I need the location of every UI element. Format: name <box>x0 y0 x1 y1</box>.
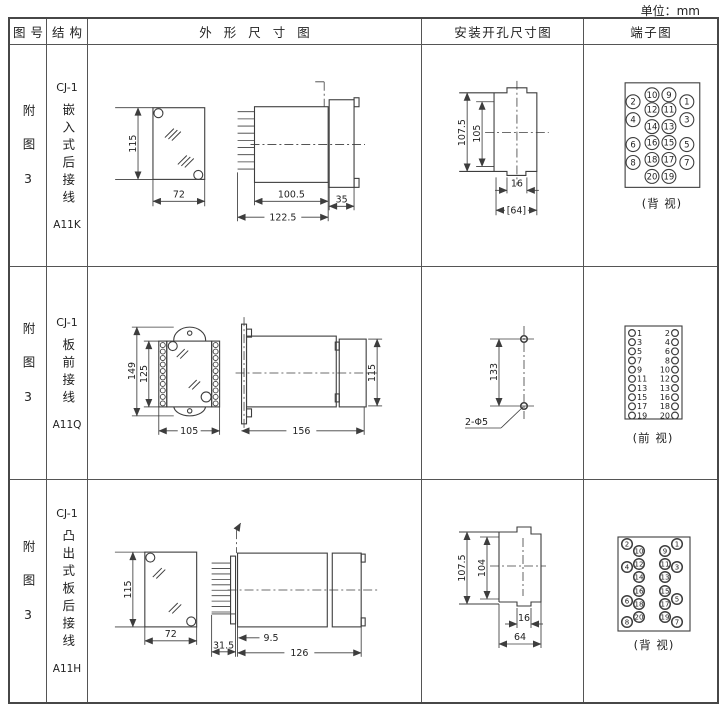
svg-text:4: 4 <box>630 115 635 125</box>
svg-text:16: 16 <box>660 393 670 402</box>
hole-note: 2-Φ5 <box>465 417 488 428</box>
svg-text:12: 12 <box>660 375 670 384</box>
svg-text:1: 1 <box>637 329 642 338</box>
svg-text:6: 6 <box>630 140 635 150</box>
svg-text:12: 12 <box>647 105 658 115</box>
structure-row2: CJ-1 板前接线 A11Q <box>47 267 88 480</box>
svg-text:11: 11 <box>661 561 670 569</box>
dim-gap: 9.5 <box>263 633 278 644</box>
svg-text:5: 5 <box>675 596 679 604</box>
install-drawing-row3: 107.5 104 16 64 <box>422 480 584 702</box>
svg-text:12: 12 <box>635 561 644 569</box>
svg-text:15: 15 <box>661 588 670 596</box>
outline-drawing-row2: 149 125 105 156 115 <box>88 267 422 480</box>
svg-text:1: 1 <box>684 97 689 107</box>
svg-text:3: 3 <box>684 115 689 125</box>
svg-text:7: 7 <box>637 356 642 365</box>
svg-text:13: 13 <box>637 384 647 393</box>
dim-height: 115 <box>128 135 139 153</box>
svg-text:4: 4 <box>625 564 630 572</box>
svg-text:8: 8 <box>665 356 670 365</box>
svg-text:9: 9 <box>663 548 667 556</box>
view-label: (背 视) <box>634 638 675 652</box>
dim-inner-h: 105 <box>472 125 483 143</box>
svg-text:9: 9 <box>666 90 671 100</box>
svg-text:17: 17 <box>661 601 670 609</box>
model-label: CJ-1 <box>56 507 78 520</box>
svg-text:16: 16 <box>635 588 644 596</box>
model-label: CJ-1 <box>56 316 78 329</box>
svg-text:3: 3 <box>675 564 679 572</box>
dim-outer-h: 107.5 <box>457 554 468 581</box>
svg-text:8: 8 <box>625 619 629 627</box>
model-label: CJ-1 <box>56 81 78 94</box>
svg-text:19: 19 <box>637 411 647 420</box>
svg-text:15: 15 <box>637 393 647 402</box>
dim-body-len: 126 <box>290 648 308 659</box>
outline-drawing-row3: 115 72 31.5 9.5 126 <box>88 480 422 702</box>
svg-text:10: 10 <box>660 365 670 374</box>
install-drawing-row2: 133 2-Φ5 <box>422 267 584 480</box>
dim-slot-w: 16 <box>518 613 530 624</box>
structure-code: A11Q <box>53 419 82 431</box>
svg-text:8: 8 <box>630 157 635 167</box>
dim-width: 105 <box>180 426 198 437</box>
svg-text:20: 20 <box>647 171 658 181</box>
fig-no-row1: 附图3 <box>10 45 47 267</box>
dim-inner-h: 104 <box>477 559 488 577</box>
svg-text:2: 2 <box>665 329 670 338</box>
structure-name: 板前接线 <box>61 338 74 408</box>
dim-width: 72 <box>173 189 185 200</box>
header-outline: 外形尺寸图 <box>88 19 422 45</box>
svg-text:18: 18 <box>635 601 644 609</box>
structure-name: 凸出式板后接线 <box>61 529 74 652</box>
header-structure: 结构 <box>47 19 88 45</box>
svg-text:20: 20 <box>660 411 670 420</box>
structure-code: A11H <box>53 663 81 675</box>
dim-rear-h: 115 <box>367 364 378 382</box>
svg-text:17: 17 <box>664 154 675 164</box>
svg-text:4: 4 <box>665 338 670 347</box>
header-install: 安装开孔尺寸图 <box>422 19 584 45</box>
svg-text:14: 14 <box>635 574 644 582</box>
svg-text:10: 10 <box>647 90 658 100</box>
spec-sheet: { "unit_label": "单位：mm", "header": { "co… <box>0 0 727 715</box>
view-label: (前 视) <box>633 431 674 445</box>
dim-height: 115 <box>123 580 134 598</box>
svg-text:15: 15 <box>664 138 675 148</box>
header-terminal: 端子图 <box>584 19 717 45</box>
terminal-diagram-row3: (背 视) 2468101214161820911131517191357 <box>584 480 717 702</box>
svg-text:7: 7 <box>684 157 689 167</box>
terminal-diagram-row1: (背 视) 2468101214161820911131517191357 <box>584 45 717 267</box>
structure-name: 嵌入式后接线 <box>61 103 74 208</box>
svg-text:13: 13 <box>664 122 675 132</box>
svg-text:14: 14 <box>647 122 658 132</box>
svg-text:6: 6 <box>665 347 670 356</box>
svg-text:13: 13 <box>660 384 670 393</box>
terminal-diagram-row2: (前 视) 1357911131517192468101213161820 <box>584 267 717 480</box>
svg-text:10: 10 <box>635 548 644 556</box>
dim-body-len: 100.5 <box>278 189 305 200</box>
spec-table: 图号 结构 外形尺寸图 安装开孔尺寸图 端子图 附图3 CJ-1 嵌入式后接线 … <box>8 17 719 704</box>
dim-outer-h: 149 <box>127 362 138 380</box>
svg-text:2: 2 <box>625 541 629 549</box>
svg-text:11: 11 <box>637 375 647 384</box>
dim-hole-dist: 133 <box>489 363 500 381</box>
dim-flange-len: 35 <box>336 194 348 205</box>
svg-text:17: 17 <box>637 402 647 411</box>
svg-text:13: 13 <box>661 574 670 582</box>
fig-no-row2: 附图3 <box>10 267 47 480</box>
dim-pin-len: 31.5 <box>213 640 234 651</box>
dim-outer-h: 107.5 <box>457 119 468 146</box>
svg-text:6: 6 <box>625 598 630 606</box>
svg-text:16: 16 <box>647 138 658 148</box>
svg-text:11: 11 <box>664 105 675 115</box>
dim-open-w: [64] <box>507 206 526 217</box>
dim-body-len: 156 <box>292 426 310 437</box>
svg-text:9: 9 <box>637 365 642 374</box>
structure-row1: CJ-1 嵌入式后接线 A11K <box>47 45 88 267</box>
structure-code: A11K <box>53 219 80 231</box>
dim-total-len: 122.5 <box>269 213 296 224</box>
dim-slot-w: 16 <box>511 178 523 189</box>
svg-text:20: 20 <box>635 614 644 622</box>
svg-text:7: 7 <box>675 619 679 627</box>
svg-text:5: 5 <box>684 140 689 150</box>
dim-width: 72 <box>165 629 177 640</box>
install-drawing-row1: 107.5 105 16 [64] <box>422 45 584 267</box>
outline-drawing-row1: 115 72 100.5 35 122.5 <box>88 45 422 267</box>
svg-text:5: 5 <box>637 347 642 356</box>
svg-text:19: 19 <box>664 171 675 181</box>
svg-text:3: 3 <box>637 338 642 347</box>
structure-row3: CJ-1 凸出式板后接线 A11H <box>47 480 88 702</box>
fig-no-row3: 附图3 <box>10 480 47 702</box>
dim-open-w: 64 <box>514 632 526 643</box>
dim-inner-h: 125 <box>139 365 150 383</box>
svg-text:18: 18 <box>660 402 670 411</box>
svg-text:19: 19 <box>661 614 670 622</box>
svg-text:2: 2 <box>630 97 635 107</box>
svg-text:18: 18 <box>647 154 658 164</box>
header-fig-no: 图号 <box>10 19 47 45</box>
view-label: (背 视) <box>642 196 682 210</box>
svg-text:1: 1 <box>675 541 679 549</box>
